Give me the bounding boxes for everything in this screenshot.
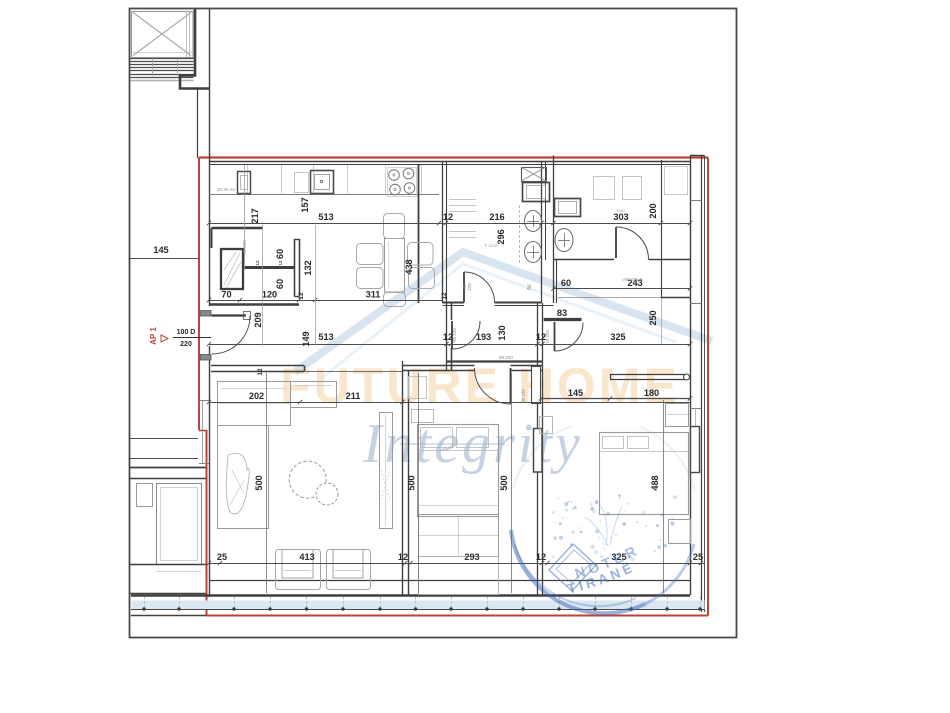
- svg-text:60: 60: [275, 249, 285, 259]
- svg-text:513: 513: [318, 212, 333, 222]
- svg-text:488: 488: [650, 475, 660, 490]
- svg-text:500: 500: [499, 475, 509, 490]
- svg-text:25: 25: [217, 552, 227, 562]
- svg-text:60: 60: [561, 278, 571, 288]
- svg-text:70: 70: [221, 290, 231, 300]
- svg-text:217: 217: [250, 208, 260, 223]
- svg-text:80 220: 80 220: [452, 328, 457, 342]
- svg-text:100 D: 100 D: [177, 329, 196, 336]
- svg-text:303: 303: [613, 212, 628, 222]
- svg-text:AV: AV: [527, 283, 533, 290]
- svg-text:413: 413: [299, 552, 314, 562]
- svg-text:3B 35 4S: 3B 35 4S: [217, 187, 236, 192]
- svg-text:500: 500: [407, 475, 417, 490]
- svg-text:220: 220: [180, 341, 192, 348]
- svg-text:132: 132: [303, 260, 313, 275]
- svg-text:12: 12: [443, 212, 453, 222]
- svg-text:83: 83: [557, 308, 567, 318]
- svg-text:12: 12: [398, 552, 408, 562]
- svg-text:293: 293: [464, 552, 479, 562]
- svg-text:80 220: 80 220: [499, 355, 513, 360]
- svg-text:FUTURE HOME: FUTURE HOME: [280, 358, 680, 414]
- svg-text:60: 60: [275, 279, 285, 289]
- svg-text:513: 513: [318, 332, 333, 342]
- svg-text:12: 12: [441, 292, 448, 300]
- svg-text:130: 130: [497, 325, 507, 340]
- svg-text:12: 12: [536, 552, 546, 562]
- svg-text:145: 145: [568, 388, 583, 398]
- svg-text:=90 220 B: =90 220 B: [622, 277, 643, 282]
- svg-text:149: 149: [301, 331, 311, 346]
- svg-text:500: 500: [254, 475, 264, 490]
- svg-text:250: 250: [648, 310, 658, 325]
- svg-text:25: 25: [693, 552, 703, 562]
- svg-text:193: 193: [476, 332, 491, 342]
- svg-text:180: 180: [644, 388, 659, 398]
- svg-text:311: 311: [366, 290, 381, 300]
- svg-text:70 220: 70 220: [545, 330, 550, 344]
- svg-text:202: 202: [249, 391, 264, 401]
- svg-text:200: 200: [648, 203, 658, 218]
- svg-text:211: 211: [346, 391, 361, 401]
- svg-text:438: 438: [404, 259, 414, 274]
- svg-text:12: 12: [255, 260, 260, 266]
- svg-text:KMC: KMC: [617, 208, 626, 213]
- svg-text:120: 120: [262, 290, 277, 300]
- svg-text:80 220: 80 220: [521, 389, 526, 403]
- svg-text:296: 296: [496, 229, 506, 244]
- svg-text:12: 12: [298, 292, 305, 300]
- svg-text:220: 220: [467, 283, 472, 291]
- svg-text:209: 209: [253, 312, 263, 327]
- svg-text:157: 157: [300, 197, 310, 212]
- svg-text:12: 12: [278, 260, 283, 266]
- svg-text:216: 216: [489, 212, 504, 222]
- svg-text:325: 325: [610, 332, 625, 342]
- svg-text:80 220: 80 220: [242, 240, 247, 254]
- svg-text:12: 12: [257, 368, 264, 376]
- svg-text:AP 1: AP 1: [149, 327, 158, 345]
- svg-text:145: 145: [153, 245, 168, 255]
